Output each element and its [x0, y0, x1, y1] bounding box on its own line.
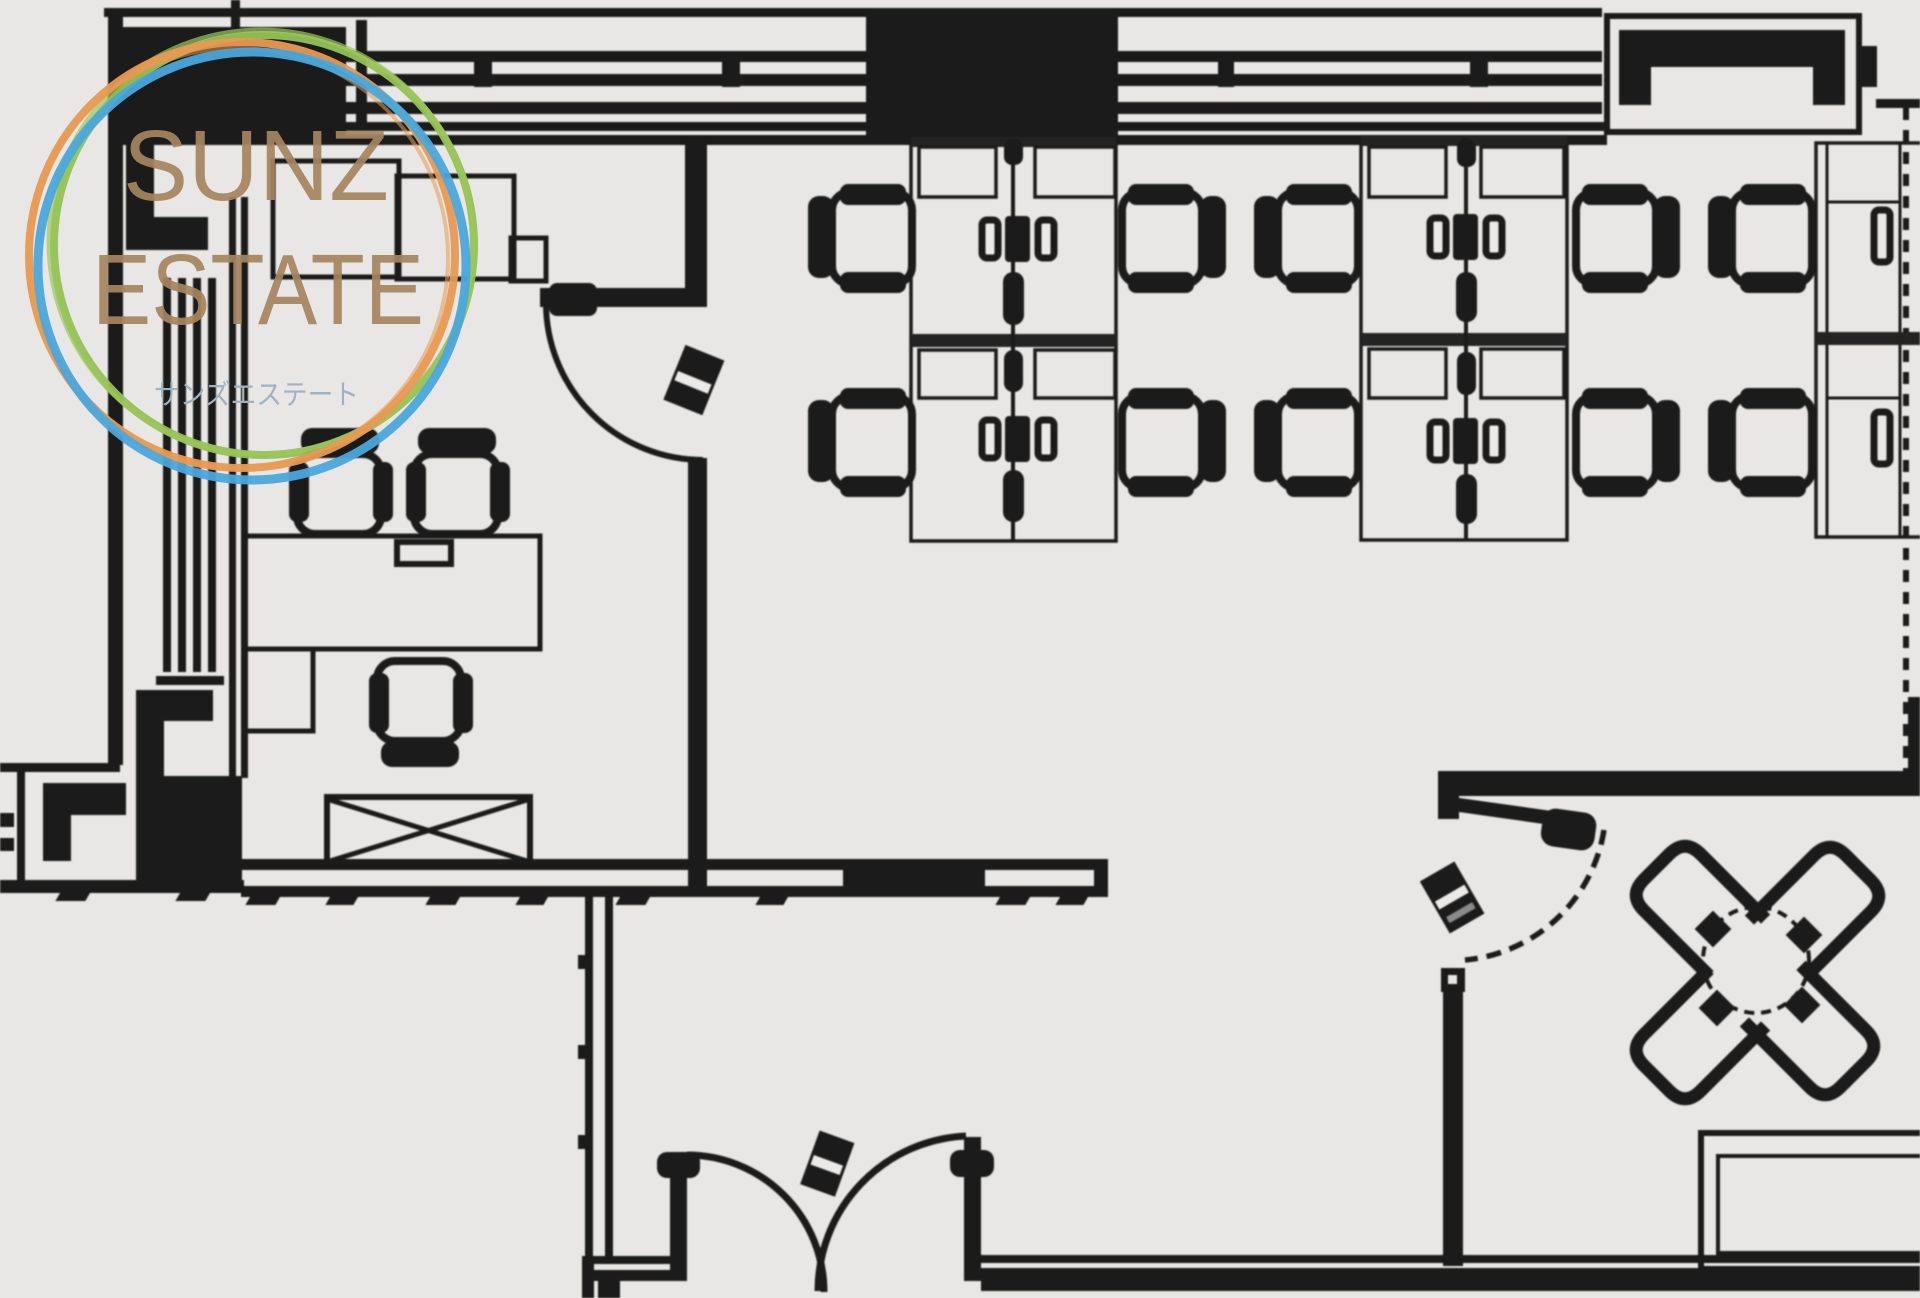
svg-text:SUNZ: SUNZ — [123, 110, 389, 222]
svg-text:ESTATE: ESTATE — [92, 234, 424, 346]
svg-text:サンズエステート: サンズエステート — [154, 379, 359, 410]
